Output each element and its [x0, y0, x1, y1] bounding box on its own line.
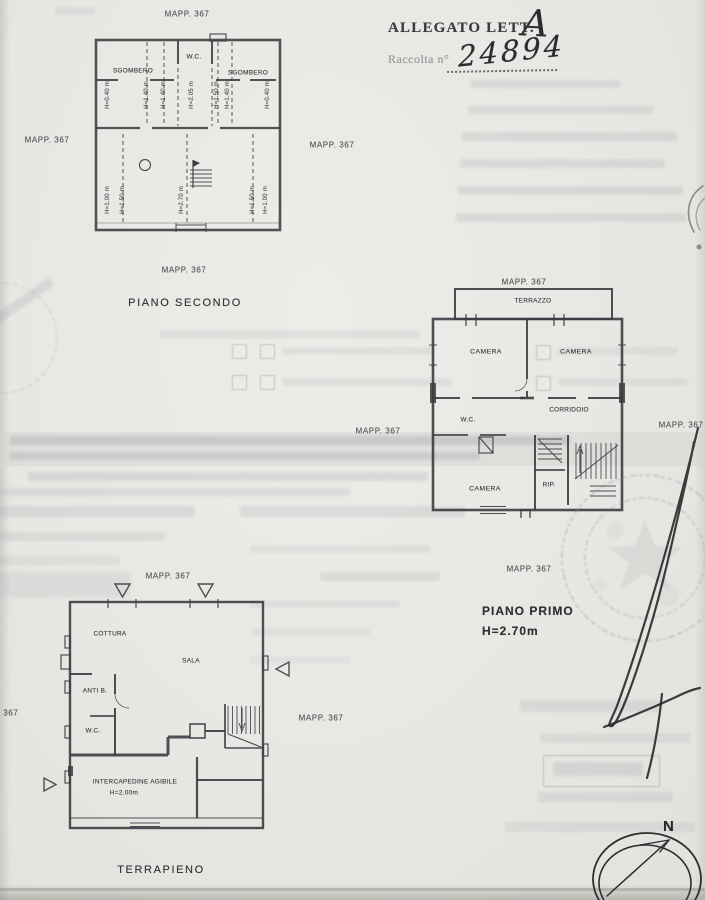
mapp-label: MAPP. 367 [162, 266, 207, 275]
room-label-terrazzo: TERRAZZO [515, 298, 552, 305]
bleedthrough-artifact [462, 132, 677, 141]
height-label: H=0.40 m [265, 81, 271, 109]
bleedthrough-value-box [543, 755, 660, 787]
door-marker-triangle [115, 584, 213, 597]
height-label: H=0.40 m [105, 81, 111, 109]
mapp-label: MAPP. 367 [507, 565, 552, 574]
height-label: H=1.00 m [105, 186, 111, 214]
bleedthrough-artifact [282, 378, 452, 386]
bleedthrough-artifact [0, 556, 120, 565]
bleedthrough-artifact [456, 213, 686, 222]
corner-arc-mark [688, 186, 705, 250]
bleedthrough-artifact [540, 733, 690, 743]
mapp-label: MAPP. 367 [659, 421, 704, 430]
piano-primo-drawing [428, 283, 633, 518]
bleedthrough-artifact [282, 347, 432, 355]
bleedthrough-artifact [553, 762, 643, 776]
room-label-sgombero: SGOMBERO [228, 70, 268, 77]
room-label-wc: W.C. [186, 54, 201, 61]
mapp-label: MAPP. 367 [502, 278, 547, 287]
door-marker-triangle [276, 662, 289, 676]
room-label-camera: CAMERA [469, 486, 501, 493]
room-label-anti-b: ANTI B. [83, 688, 107, 695]
faint-left-stamp [0, 283, 57, 393]
room-label-intercapedine-height: H=2.00m [110, 790, 138, 797]
room-label-cottura: COTTURA [94, 631, 127, 638]
door-marker-triangle [44, 778, 56, 791]
piano-terra-drawing [40, 576, 290, 856]
bleedthrough-artifact [470, 80, 620, 88]
bleedthrough-artifact [520, 700, 660, 712]
bleedthrough-artifact [0, 506, 195, 517]
bleedthrough-artifact [250, 545, 430, 553]
terrapieno-label: TERRAPIENO [117, 864, 205, 876]
room-label-rip: RIP. [543, 482, 556, 489]
bleedthrough-artifact [460, 159, 665, 168]
bleedthrough-artifact [10, 452, 480, 460]
piano-primo-title: PIANO PRIMO [482, 604, 574, 618]
height-label: H=1.00 m [263, 186, 269, 214]
left-edge-shadow [0, 0, 10, 900]
room-label-wc: W.C. [85, 728, 100, 735]
bleedthrough-artifact [28, 472, 428, 481]
bleedthrough-artifact [160, 330, 420, 339]
north-arrow [593, 833, 701, 900]
mapp-label: MAPP. 367 [310, 141, 355, 150]
mapp-label-truncated: MAPP. 367 [0, 709, 18, 718]
mapp-label: MAPP. 367 [356, 427, 401, 436]
room-label-wc: W.C. [460, 417, 475, 424]
bleedthrough-artifact [0, 532, 165, 541]
bleedthrough-artifact [458, 186, 683, 195]
height-label: H=1.50 m [120, 186, 126, 214]
raccolta-label: Raccolta n° [388, 52, 449, 67]
height-label: H=1.40 m [144, 81, 150, 109]
bleedthrough-checkbox [260, 344, 275, 359]
bleedthrough-checkbox [232, 344, 247, 359]
bleedthrough-artifact [320, 572, 440, 581]
height-label: H=1.40 m [161, 81, 167, 109]
scanned-cadastral-document: ALLEGATO LETT. A Raccolta n° 24894 MAPP.… [0, 0, 705, 900]
mapp-label: MAPP. 367 [165, 10, 210, 19]
bleedthrough-artifact [0, 488, 350, 496]
bleedthrough-checkbox [232, 375, 247, 390]
height-label: H=1.50 m [250, 186, 256, 214]
height-label: H=2.70 m [179, 186, 185, 214]
bleedthrough-artifact [0, 277, 55, 325]
piano-secondo-title: PIANO SECONDO [128, 297, 242, 309]
height-label: H=2.05 m [189, 81, 195, 109]
north-label: N [663, 818, 674, 835]
mapp-label: MAPP. 367 [146, 572, 191, 581]
room-label-camera: CAMERA [470, 349, 502, 356]
room-label-sgombero: SGOMBERO [113, 68, 153, 75]
height-label: H=1.50 m [214, 81, 220, 109]
room-label-sala: SALA [182, 658, 200, 665]
room-label-corridoio: CORRIDOIO [549, 407, 589, 414]
bottom-scan-streak [0, 888, 705, 891]
right-edge-shadow [695, 0, 705, 900]
mapp-label: MAPP. 367 [25, 136, 70, 145]
room-label-camera: CAMERA [560, 349, 592, 356]
bleedthrough-checkbox [260, 375, 275, 390]
bleedthrough-artifact [468, 106, 653, 114]
bleedthrough-artifact [538, 792, 673, 802]
mapp-label: MAPP. 367 [299, 714, 344, 723]
bleedthrough-artifact [55, 7, 95, 15]
bottom-scan-line [0, 884, 705, 900]
piano-primo-height: H=2.70m [482, 624, 539, 638]
room-label-intercapedine: INTERCAPEDINE AGIBILE [93, 779, 177, 786]
height-label: H=1.40 m [225, 81, 231, 109]
